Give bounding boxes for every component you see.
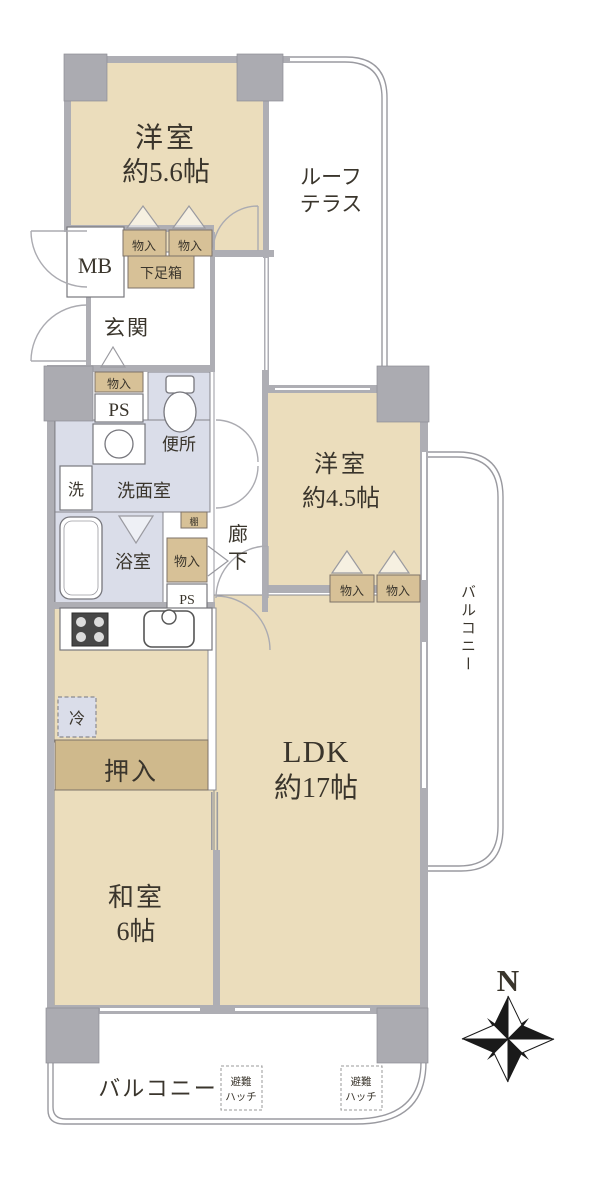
hatch-label-2: ハッチ xyxy=(345,1091,377,1103)
storage-label: 物入 xyxy=(107,377,131,391)
hatch-label-1: 避難 xyxy=(231,1075,252,1088)
room-washitsu-name: 和室 xyxy=(108,883,164,912)
compass-north-label: N xyxy=(497,963,519,998)
room-ldk-name: LDK xyxy=(283,734,350,769)
storage-label: 物入 xyxy=(386,584,410,598)
storage-label: 物入 xyxy=(178,239,202,253)
room-ldk-size: 約17帖 xyxy=(274,772,358,804)
balcony-right-label: バルコニー xyxy=(452,584,478,694)
storage-label: 物入 xyxy=(340,584,364,598)
shelf-label: 棚 xyxy=(189,516,198,527)
entrance-step-icon xyxy=(101,347,125,367)
room-west1-name: 洋室 xyxy=(135,122,197,154)
meter-box-label: MB xyxy=(78,253,112,278)
hatch-label-2: ハッチ xyxy=(225,1091,257,1103)
room-west2-size: 約4.5帖 xyxy=(302,485,380,512)
compass-icon: N xyxy=(462,963,554,1082)
balcony-bottom-label: バルコニー xyxy=(98,1076,218,1101)
shoe-box-label: 下足箱 xyxy=(140,266,182,282)
evacuation-hatch-1 xyxy=(221,1066,262,1110)
bathroom-label: 浴室 xyxy=(115,552,151,572)
genkan-label: 玄関 xyxy=(104,316,150,340)
roof-terrace-label-2: テラス xyxy=(300,192,363,216)
storage-label: 物入 xyxy=(132,239,156,253)
hatch-label-1: 避難 xyxy=(351,1075,372,1088)
kitchen-counter xyxy=(60,608,212,650)
stove-icon xyxy=(72,613,108,646)
sink-icon xyxy=(144,610,194,647)
storage-label: 物入 xyxy=(174,554,200,569)
room-west2-name: 洋室 xyxy=(314,451,368,478)
room-washitsu-size: 6帖 xyxy=(116,917,155,946)
room-west1-size: 約5.6帖 xyxy=(122,157,210,187)
washroom-label: 洗面室 xyxy=(117,481,171,501)
oshiire-label: 押入 xyxy=(104,758,158,786)
corridor-label-1: 廊 xyxy=(228,523,248,546)
washbasin-icon xyxy=(105,430,133,458)
roof-terrace-label-1: ルーフ xyxy=(300,165,362,189)
laundry-label: 洗 xyxy=(68,481,84,499)
pipe-space-label: PS xyxy=(179,593,195,608)
evacuation-hatch-2 xyxy=(341,1066,382,1110)
floorplan-canvas: 洋室 約5.6帖 ルーフ テラス MB 物入 物入 下足箱 玄関 物入 PS 便… xyxy=(0,0,600,1182)
toilet-icon xyxy=(164,376,196,432)
toilet-label: 便所 xyxy=(162,435,196,454)
corridor-label-2: 下 xyxy=(228,551,248,573)
pipe-space-label: PS xyxy=(108,400,129,421)
floorplan-image: 洋室 約5.6帖 ルーフ テラス MB 物入 物入 下足箱 玄関 物入 PS 便… xyxy=(0,0,600,1182)
bathtub-icon xyxy=(60,517,102,599)
fridge-label: 冷 xyxy=(69,710,85,728)
